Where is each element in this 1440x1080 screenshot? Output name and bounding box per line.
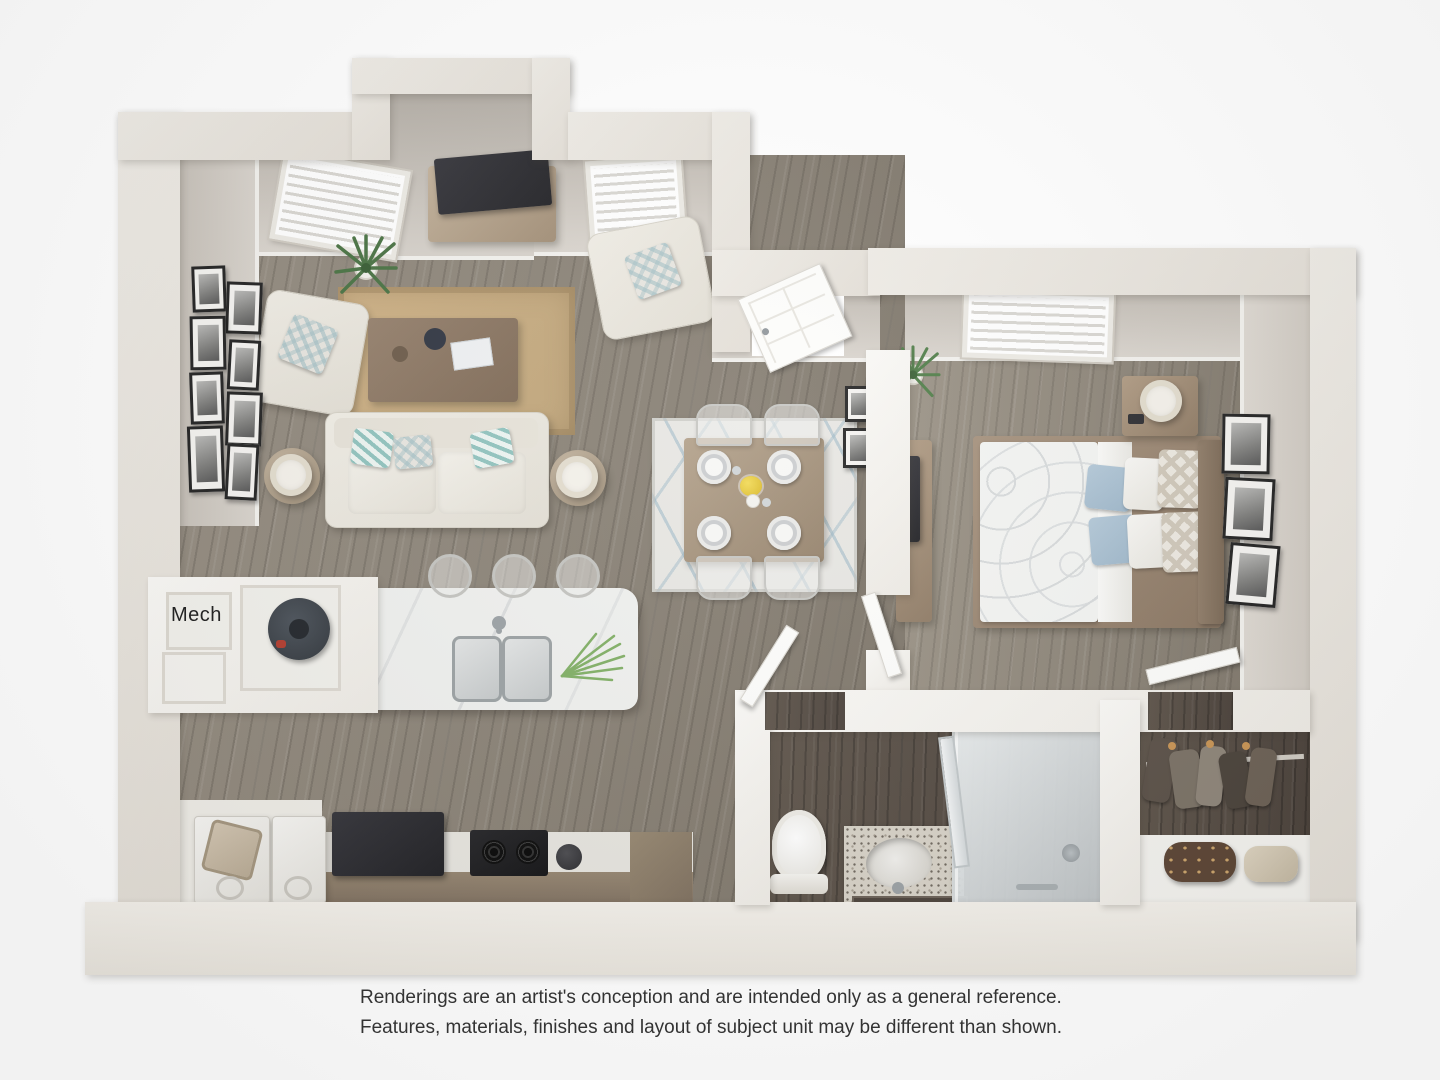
floor-plan-rendering-page: { "labels": { "mech": "Mech" }, "disclai… [0, 0, 1440, 1080]
alcove-bump-right-wall [532, 58, 570, 160]
table-lamp-left [270, 454, 312, 496]
nightstand-phone [1128, 414, 1144, 424]
flower-centerpiece [740, 476, 762, 496]
frame-art [1231, 423, 1261, 465]
bed-pillow-patterned [1157, 449, 1203, 509]
place-setting [697, 516, 731, 550]
nightstand-lamp [1140, 380, 1182, 422]
water-glass [762, 498, 771, 507]
mech-label: Mech [171, 604, 222, 627]
disclaimer-line-2: Features, materials, finishes and layout… [360, 1013, 1120, 1043]
gallery-frame [225, 391, 263, 446]
frame-art [197, 380, 218, 416]
island-faucet [492, 616, 506, 630]
frame-art [233, 290, 255, 326]
bath-closet-divider-wall [1100, 700, 1140, 905]
toilet-tank [770, 874, 828, 894]
frame-art [197, 325, 219, 362]
place-setting [767, 516, 801, 550]
potted-plant-living [328, 228, 404, 304]
gallery-frame [190, 316, 227, 371]
duffel-bag-brown [1164, 842, 1236, 882]
water-heater-valve [276, 640, 286, 648]
sofa-pillow-teal-right [469, 427, 515, 469]
coffee-table-book [450, 337, 494, 370]
island-sink-left-basin [452, 636, 502, 702]
frame-art [199, 273, 220, 304]
bathroom-door-opening [765, 692, 845, 730]
disclaimer-line-1: Renderings are an artist's conception an… [360, 983, 1120, 1013]
bedroom-divider-wall [866, 350, 910, 595]
dryer-door-ring [284, 876, 312, 900]
vanity-faucet [892, 882, 904, 894]
flower-vase [746, 494, 760, 508]
gallery-frame [191, 265, 227, 312]
dining-chair [764, 404, 820, 446]
frame-art [1236, 552, 1270, 597]
coffee-table-tray [392, 346, 408, 362]
water-heater-cap [289, 619, 309, 639]
bedroom-north-outer-wall [868, 248, 1356, 295]
island-sink-right-basin [502, 636, 552, 702]
gallery-frame [225, 281, 263, 334]
clothes-hanger-hook [1206, 740, 1214, 748]
place-setting [767, 450, 801, 484]
bar-stool [492, 554, 536, 598]
north-wall-left [118, 112, 354, 160]
frame-art [851, 393, 866, 416]
bedroom-window [962, 287, 1114, 362]
window-blinds [970, 296, 1106, 355]
refrigerator [332, 812, 444, 876]
stove-burner [482, 840, 506, 864]
shower-drain-bar [1016, 884, 1058, 890]
frame-art [195, 436, 218, 482]
kitchen-end-cabinet [630, 832, 692, 904]
sofa-pillow-teal-left [350, 427, 395, 468]
plant-icon [328, 228, 404, 304]
water-glass [732, 466, 741, 475]
bedroom-frame [1222, 477, 1275, 542]
gallery-frame [189, 371, 225, 424]
toilet [772, 810, 826, 880]
bar-stool [556, 554, 600, 598]
frame-art [234, 348, 254, 382]
disclaimer-text: Renderings are an artist's conception an… [360, 983, 1120, 1043]
sofa-pillow-center [392, 434, 433, 470]
clothes-hanger-hook [1242, 742, 1250, 750]
dining-chair [696, 556, 752, 600]
dining-chair [764, 556, 820, 600]
gallery-frame [225, 443, 260, 501]
coffee-table-decor [424, 328, 446, 350]
headboard [1198, 440, 1224, 624]
countertop-bowl [556, 844, 582, 870]
palm-frond-icon [556, 630, 626, 690]
west-outer-wall [118, 112, 180, 940]
bag-light [1244, 846, 1298, 882]
table-lamp-right [556, 456, 598, 498]
shower-head [1062, 844, 1080, 862]
frame-art [233, 400, 255, 437]
entry-niche-cabinet [162, 652, 226, 704]
stove-burner [516, 840, 540, 864]
bar-stool [428, 554, 472, 598]
dining-chair [696, 404, 752, 446]
frame-art [850, 435, 867, 461]
washer-door-ring [216, 876, 244, 900]
palm-frond-decor [556, 630, 626, 690]
clothes-hanger-hook [1168, 742, 1176, 750]
gallery-frame [187, 425, 225, 492]
floral-duvet [980, 442, 1098, 622]
frame-art [1233, 487, 1266, 531]
bedroom-frame [1225, 542, 1280, 608]
south-outer-wall [85, 902, 1356, 975]
bedroom-frame [1221, 414, 1270, 475]
frame-art [232, 453, 252, 492]
east-outer-wall [1310, 248, 1356, 940]
gallery-frame [227, 339, 262, 391]
closet-door-opening [1148, 692, 1233, 730]
place-setting [697, 450, 731, 484]
